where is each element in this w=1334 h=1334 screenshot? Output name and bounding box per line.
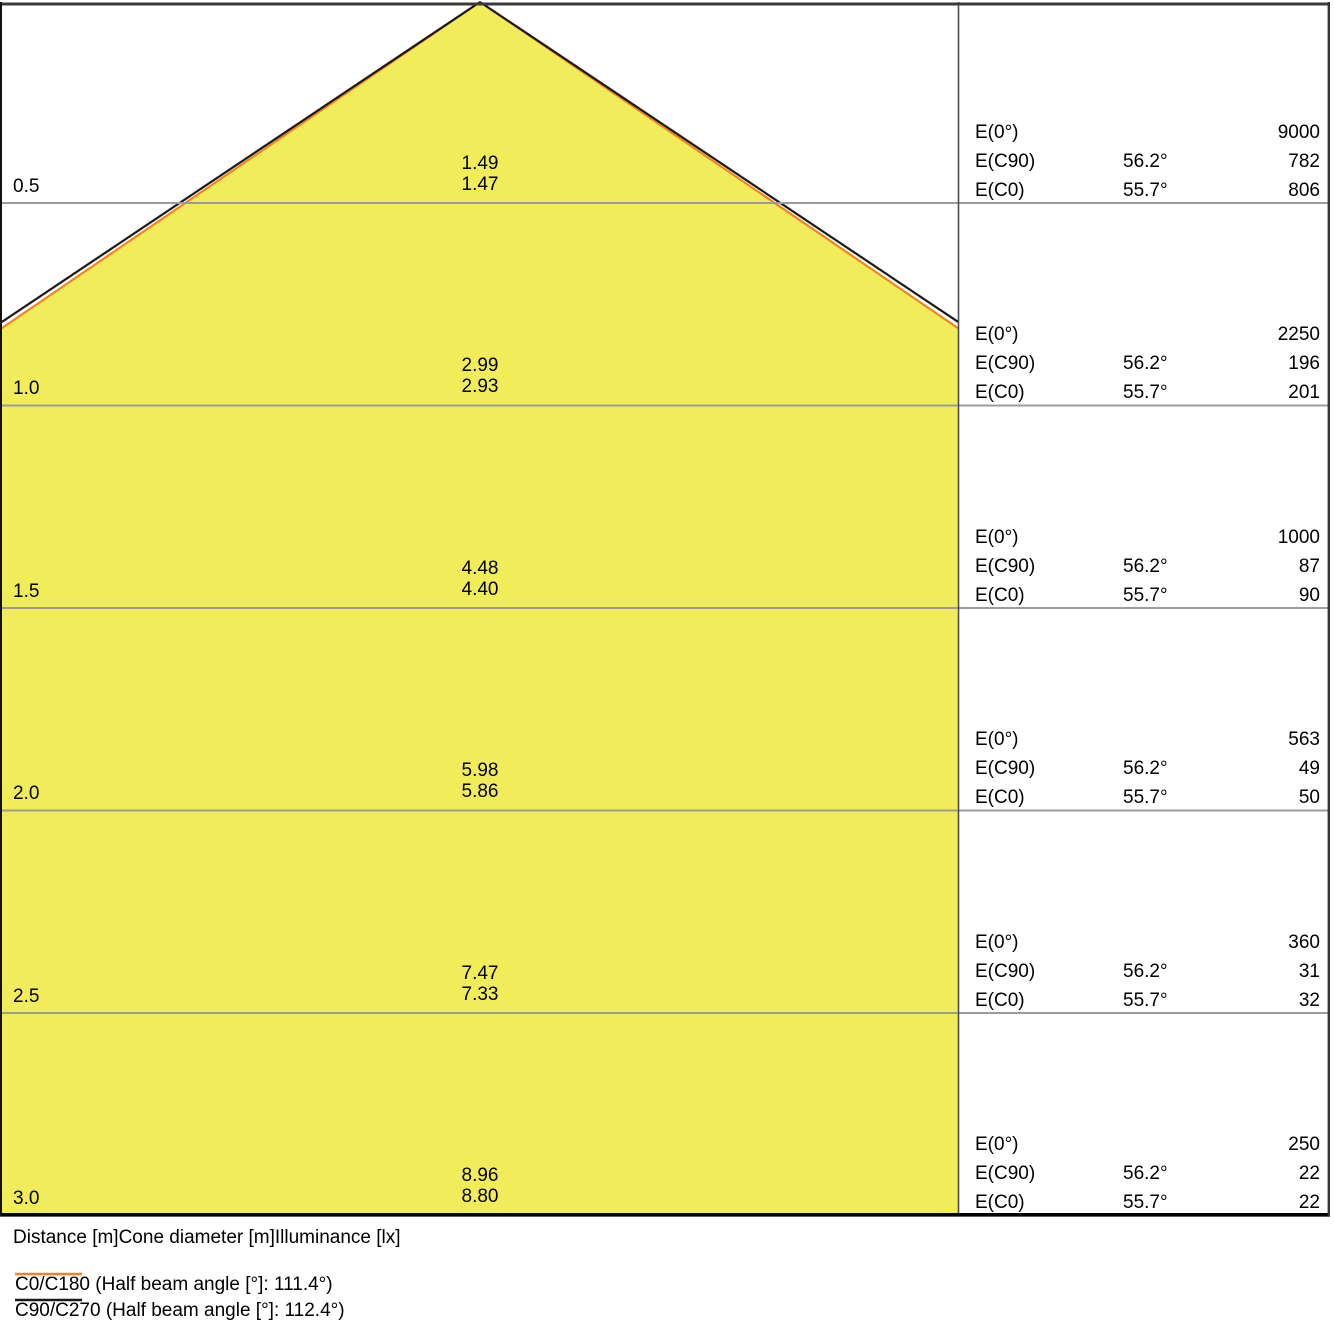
distance-label-2-0: 2.0 bbox=[13, 783, 39, 805]
ec90-value: 196 bbox=[1288, 353, 1320, 375]
ec90-value: 31 bbox=[1299, 961, 1320, 983]
ec0-line: E(C0)55.7°32 bbox=[958, 986, 1330, 1015]
legend-label-c0: C0/C180 (Half beam angle [°]: 111.4°) bbox=[15, 1274, 333, 1296]
cone-diameter-values: 4.48 4.40 bbox=[405, 558, 555, 600]
ec0-angle: 55.7° bbox=[1123, 585, 1168, 607]
ec0-value: 806 bbox=[1288, 180, 1320, 202]
ec90-value: 87 bbox=[1299, 556, 1320, 578]
ec0-value: 201 bbox=[1288, 382, 1320, 404]
c90-line-swatch bbox=[15, 1298, 82, 1302]
e0-value: 2250 bbox=[1278, 324, 1320, 346]
cone-diameter-c0: 8.80 bbox=[405, 1186, 555, 1207]
cone-diameter-values: 7.47 7.33 bbox=[405, 963, 555, 1005]
e0-label: E(0°) bbox=[975, 1134, 1019, 1156]
cone-diameter-values: 5.98 5.86 bbox=[405, 760, 555, 802]
luminous-cone-diagram: 0.5 1.0 1.5 2.0 2.5 3.0 1.49 1.47 2.99 2… bbox=[0, 0, 1334, 1334]
ec0-angle: 55.7° bbox=[1123, 382, 1168, 404]
ec90-label: E(C90) bbox=[975, 353, 1035, 375]
e0-value: 9000 bbox=[1278, 122, 1320, 144]
ec0-label: E(C0) bbox=[975, 1192, 1025, 1214]
ec0-angle: 55.7° bbox=[1123, 990, 1168, 1012]
ec90-line: E(C90)56.2°782 bbox=[958, 147, 1330, 176]
cone-diameter-c0: 1.47 bbox=[405, 174, 555, 195]
illuminance-block-2-0m: E(0°)563 E(C90)56.2°49 E(C0)55.7°50 bbox=[958, 725, 1330, 812]
e0-line: E(0°)9000 bbox=[958, 118, 1330, 147]
e0-value: 250 bbox=[1288, 1134, 1320, 1156]
ec90-value: 49 bbox=[1299, 758, 1320, 780]
cone-diameter-c90: 5.98 bbox=[405, 760, 555, 781]
cone-diameter-c90: 4.48 bbox=[405, 558, 555, 579]
ec90-angle: 56.2° bbox=[1123, 1163, 1168, 1185]
cone-diameter-values: 2.99 2.93 bbox=[405, 355, 555, 397]
cone-diameter-c90: 2.99 bbox=[405, 355, 555, 376]
distance-label-1-0: 1.0 bbox=[13, 378, 39, 400]
illuminance-block-1-5m: E(0°)1000 E(C90)56.2°87 E(C0)55.7°90 bbox=[958, 523, 1330, 610]
ec90-label: E(C90) bbox=[975, 1163, 1035, 1185]
illuminance-block-0-5m: E(0°)9000 E(C90)56.2°782 E(C0)55.7°806 bbox=[958, 118, 1330, 205]
ec0-line: E(C0)55.7°50 bbox=[958, 783, 1330, 812]
cone-diameter-c90: 1.49 bbox=[405, 153, 555, 174]
ec90-line: E(C90)56.2°87 bbox=[958, 552, 1330, 581]
ec0-line: E(C0)55.7°201 bbox=[958, 378, 1330, 407]
e0-line: E(0°)2250 bbox=[958, 320, 1330, 349]
c0-line-swatch bbox=[15, 1272, 82, 1276]
cone-diameter-c0: 5.86 bbox=[405, 781, 555, 802]
ec90-label: E(C90) bbox=[975, 151, 1035, 173]
cone-diameter-c90: 7.47 bbox=[405, 963, 555, 984]
ec0-line: E(C0)55.7°22 bbox=[958, 1188, 1330, 1217]
ec90-line: E(C90)56.2°22 bbox=[958, 1159, 1330, 1188]
ec90-angle: 56.2° bbox=[1123, 961, 1168, 983]
legend-label-c90: C90/C270 (Half beam angle [°]: 112.4°) bbox=[15, 1300, 345, 1322]
cone-diameter-values: 1.49 1.47 bbox=[405, 153, 555, 195]
ec0-angle: 55.7° bbox=[1123, 1192, 1168, 1214]
ec0-label: E(C0) bbox=[975, 585, 1025, 607]
ec90-line: E(C90)56.2°31 bbox=[958, 957, 1330, 986]
ec0-value: 32 bbox=[1299, 990, 1320, 1012]
ec90-angle: 56.2° bbox=[1123, 556, 1168, 578]
e0-line: E(0°)250 bbox=[958, 1130, 1330, 1159]
e0-line: E(0°)563 bbox=[958, 725, 1330, 754]
ec0-angle: 55.7° bbox=[1123, 787, 1168, 809]
e0-label: E(0°) bbox=[975, 527, 1019, 549]
ec90-angle: 56.2° bbox=[1123, 353, 1168, 375]
illuminance-block-3-0m: E(0°)250 E(C90)56.2°22 E(C0)55.7°22 bbox=[958, 1130, 1330, 1217]
ec90-angle: 56.2° bbox=[1123, 758, 1168, 780]
ec0-label: E(C0) bbox=[975, 382, 1025, 404]
ec90-line: E(C90)56.2°49 bbox=[958, 754, 1330, 783]
distance-label-2-5: 2.5 bbox=[13, 986, 39, 1008]
ec0-value: 50 bbox=[1299, 787, 1320, 809]
ec0-angle: 55.7° bbox=[1123, 180, 1168, 202]
e0-line: E(0°)1000 bbox=[958, 523, 1330, 552]
e0-label: E(0°) bbox=[975, 932, 1019, 954]
e0-label: E(0°) bbox=[975, 729, 1019, 751]
cone-diameter-c0: 7.33 bbox=[405, 984, 555, 1005]
axis-caption: Distance [m]Cone diameter [m]Illuminance… bbox=[13, 1227, 401, 1249]
distance-label-1-5: 1.5 bbox=[13, 581, 39, 603]
cone-diameter-c0: 2.93 bbox=[405, 376, 555, 397]
ec90-value: 782 bbox=[1288, 151, 1320, 173]
ec0-line: E(C0)55.7°806 bbox=[958, 176, 1330, 205]
ec0-value: 90 bbox=[1299, 585, 1320, 607]
e0-line: E(0°)360 bbox=[958, 928, 1330, 957]
illuminance-block-2-5m: E(0°)360 E(C90)56.2°31 E(C0)55.7°32 bbox=[958, 928, 1330, 1015]
ec0-label: E(C0) bbox=[975, 787, 1025, 809]
ec0-label: E(C0) bbox=[975, 990, 1025, 1012]
ec90-value: 22 bbox=[1299, 1163, 1320, 1185]
illuminance-block-1-0m: E(0°)2250 E(C90)56.2°196 E(C0)55.7°201 bbox=[958, 320, 1330, 407]
ec90-label: E(C90) bbox=[975, 961, 1035, 983]
ec90-label: E(C90) bbox=[975, 758, 1035, 780]
cone-diameter-c0: 4.40 bbox=[405, 579, 555, 600]
e0-value: 1000 bbox=[1278, 527, 1320, 549]
e0-value: 360 bbox=[1288, 932, 1320, 954]
ec0-label: E(C0) bbox=[975, 180, 1025, 202]
ec0-value: 22 bbox=[1299, 1192, 1320, 1214]
cone-diameter-c90: 8.96 bbox=[405, 1165, 555, 1186]
ec90-angle: 56.2° bbox=[1123, 151, 1168, 173]
e0-label: E(0°) bbox=[975, 324, 1019, 346]
distance-label-0-5: 0.5 bbox=[13, 176, 39, 198]
legend-item-c0: C0/C180 (Half beam angle [°]: 111.4°) bbox=[15, 1272, 333, 1298]
distance-label-3-0: 3.0 bbox=[13, 1188, 39, 1210]
e0-value: 563 bbox=[1288, 729, 1320, 751]
ec0-line: E(C0)55.7°90 bbox=[958, 581, 1330, 610]
legend-item-c90: C90/C270 (Half beam angle [°]: 112.4°) bbox=[15, 1298, 345, 1324]
cone-diameter-values: 8.96 8.80 bbox=[405, 1165, 555, 1207]
e0-label: E(0°) bbox=[975, 122, 1019, 144]
ec90-label: E(C90) bbox=[975, 556, 1035, 578]
ec90-line: E(C90)56.2°196 bbox=[958, 349, 1330, 378]
